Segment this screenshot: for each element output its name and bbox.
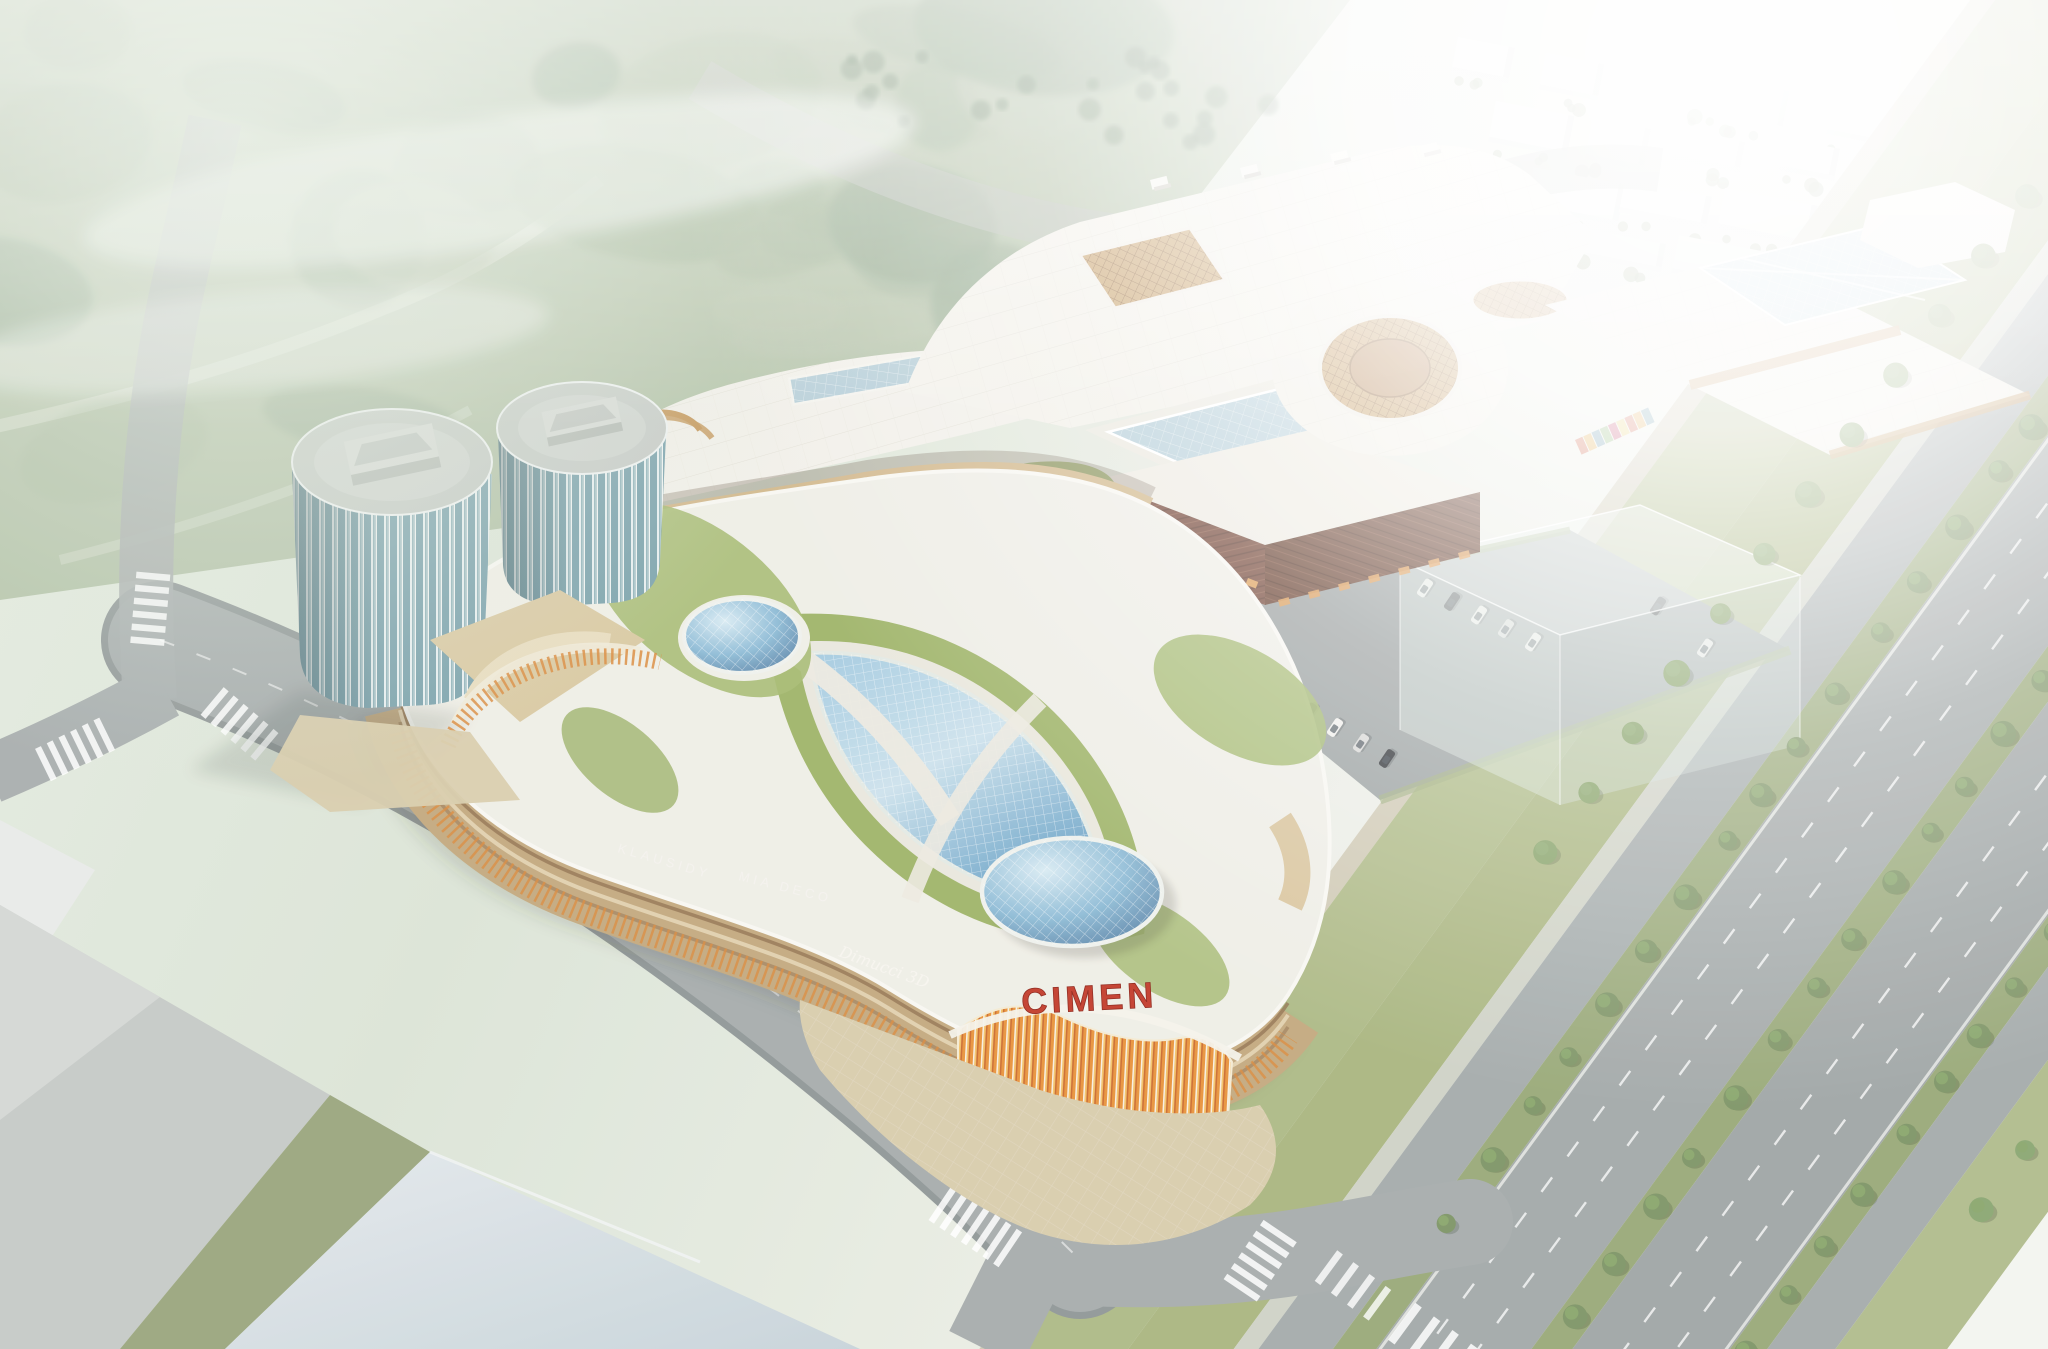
aerial-scene: KLAUSIDY MIA DECO Dimucci 3D CIMEN (0, 0, 2048, 1349)
architectural-rendering: KLAUSIDY MIA DECO Dimucci 3D CIMEN (0, 0, 2048, 1349)
haze-veil (0, 0, 2048, 1349)
atmospheric-haze (0, 0, 2048, 1349)
